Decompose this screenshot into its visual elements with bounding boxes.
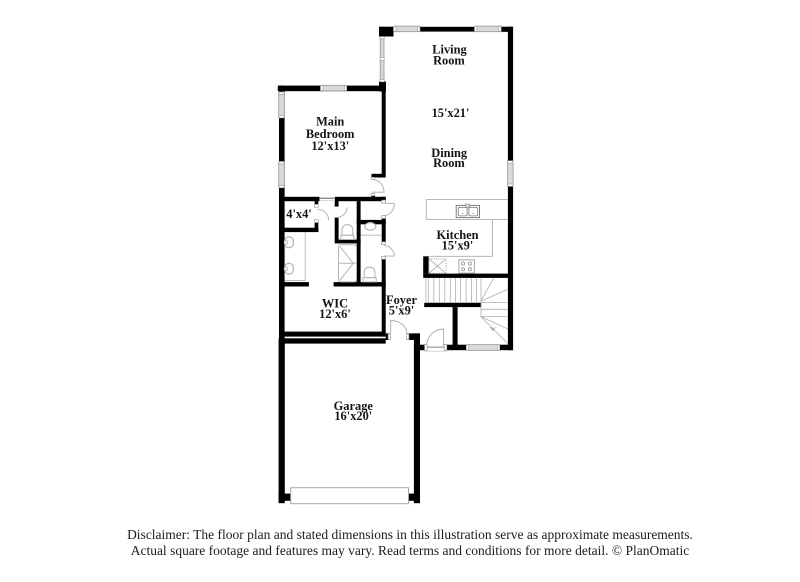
svg-text:15'x21': 15'x21' <box>432 106 470 120</box>
svg-text:Room: Room <box>433 53 465 67</box>
svg-text:12'x13': 12'x13' <box>311 139 349 153</box>
svg-text:4'x4': 4'x4' <box>286 207 311 221</box>
svg-text:15'x9': 15'x9' <box>442 239 474 253</box>
svg-text:Room: Room <box>433 156 465 170</box>
svg-text:5'x9': 5'x9' <box>389 303 414 317</box>
svg-text:Disclaimer: The floor plan and: Disclaimer: The floor plan and stated di… <box>127 527 693 542</box>
svg-text:16'x20': 16'x20' <box>334 409 372 423</box>
svg-text:Actual square footage and feat: Actual square footage and features may v… <box>131 543 690 558</box>
svg-text:12'x6': 12'x6' <box>319 307 351 321</box>
